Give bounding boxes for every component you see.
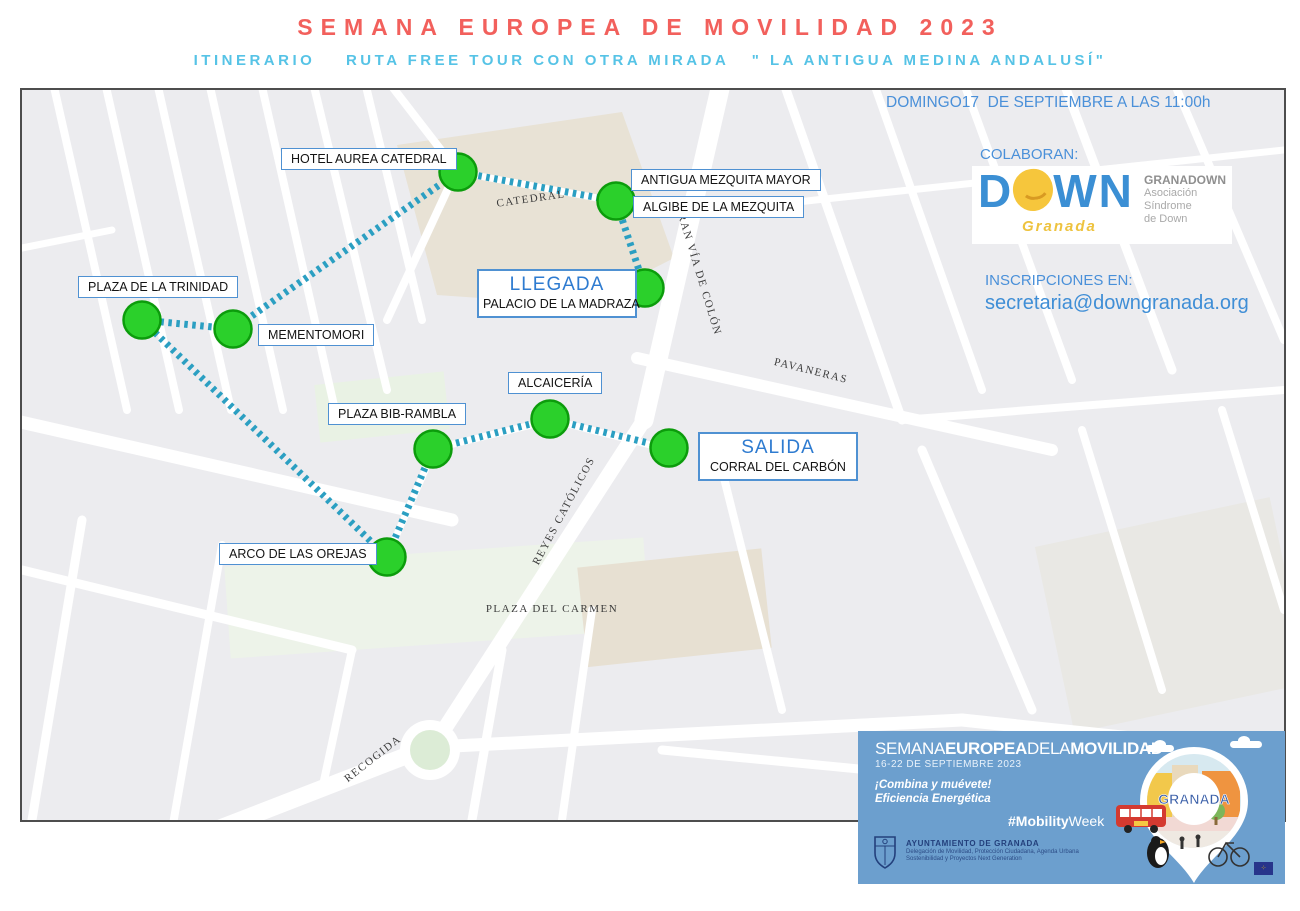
logo-org-block: GRANADOWN Asociación Síndrome de Down [1144, 174, 1226, 226]
smiley-o-icon [1011, 166, 1056, 213]
banner-tagline1: ¡Combina y muévete! [875, 779, 991, 791]
eu-flag-icon: ⁘ [1254, 862, 1273, 875]
map-endpoint-label: LLEGADAPALACIO DE LA MADRAZA [477, 269, 637, 318]
pin-granada-text: GRANADA [1158, 791, 1230, 807]
roundabout-green [410, 730, 450, 770]
logo-org-line2: Síndrome [1144, 200, 1226, 213]
endpoint-title: SALIDA [704, 437, 852, 459]
map-stop-label: ALCAICERÍA [508, 372, 602, 394]
cloud-icon [1146, 745, 1174, 752]
route-stop-marker[interactable] [532, 401, 569, 438]
page-subtitle: ITINERARIO RUTA FREE TOUR CON OTRA MIRAD… [0, 52, 1300, 69]
ayuntamiento-block: AYUNTAMIENTO DE GRANADA Delegación de Mo… [906, 839, 1079, 863]
map-stop-label: ARCO DE LAS OREJAS [219, 543, 377, 565]
city-shield-icon [872, 835, 898, 869]
map-stop-label: MEMENTOMORI [258, 324, 374, 346]
endpoint-title: LLEGADA [483, 274, 631, 296]
map-stop-label: ANTIGUA MEZQUITA MAYOR [631, 169, 821, 191]
granada-pin-illustration: GRANADA [1116, 743, 1272, 884]
map-stop-label: PLAZA BIB-RAMBLA [328, 403, 466, 425]
mobility-week-banner: SEMANAEUROPEADELAMOVILIDAD 16-22 DE SEPT… [858, 731, 1285, 884]
down-logo-word: DWN [978, 168, 1134, 214]
downgranada-logo: DWN Granada GRANADOWN Asociación Síndrom… [972, 166, 1232, 244]
inscripciones-label: INSCRIPCIONES EN: [985, 272, 1133, 289]
map-endpoint-label: SALIDACORRAL DEL CARBÓN [698, 432, 858, 481]
cloud-icon [1230, 741, 1262, 748]
ayuntamiento-line1: Delegación de Movilidad, Protección Ciud… [906, 849, 1079, 856]
logo-org-name: GRANADOWN [1144, 174, 1226, 187]
logo-org-line3: de Down [1144, 213, 1226, 226]
logo-granada-script: Granada [1022, 218, 1097, 235]
ayuntamiento-name: AYUNTAMIENTO DE GRANADA [906, 839, 1079, 849]
inscripciones-email[interactable]: secretaria@downgranada.org [985, 292, 1249, 315]
logo-org-line1: Asociación [1144, 187, 1226, 200]
route-stop-marker[interactable] [124, 302, 161, 339]
endpoint-subtitle: CORRAL DEL CARBÓN [704, 460, 852, 474]
street-name: PLAZA DEL CARMEN [486, 603, 618, 615]
page-title: SEMANA EUROPEA DE MOVILIDAD 2023 [0, 14, 1300, 41]
colaboran-label: COLABORAN: [980, 146, 1078, 163]
map-stop-label: HOTEL AUREA CATEDRAL [281, 148, 457, 170]
event-datetime: DOMINGO17 DE SEPTIEMBRE A LAS 11:00h [886, 94, 1210, 112]
logo-letters-wn: WN [1053, 165, 1134, 217]
route-stop-marker[interactable] [415, 431, 452, 468]
endpoint-subtitle: PALACIO DE LA MADRAZA [483, 297, 631, 311]
banner-hashtag: #MobilityWeek [1008, 813, 1104, 829]
map-stop-label: PLAZA DE LA TRINIDAD [78, 276, 238, 298]
logo-letter-d: D [978, 165, 1013, 217]
poster-page: SEMANA EUROPEA DE MOVILIDAD 2023 ITINERA… [0, 0, 1300, 911]
banner-tagline2: Eficiencia Energética [875, 793, 991, 805]
route-stop-marker[interactable] [651, 430, 688, 467]
banner-dates: 16-22 DE SEPTIEMBRE 2023 [875, 759, 1022, 770]
map-stop-label: ALGIBE DE LA MEZQUITA [633, 196, 804, 218]
route-stop-marker[interactable] [215, 311, 252, 348]
ayuntamiento-line2: Sostenibilidad y Proyectos Next Generati… [906, 856, 1079, 863]
route-stop-marker[interactable] [598, 183, 635, 220]
